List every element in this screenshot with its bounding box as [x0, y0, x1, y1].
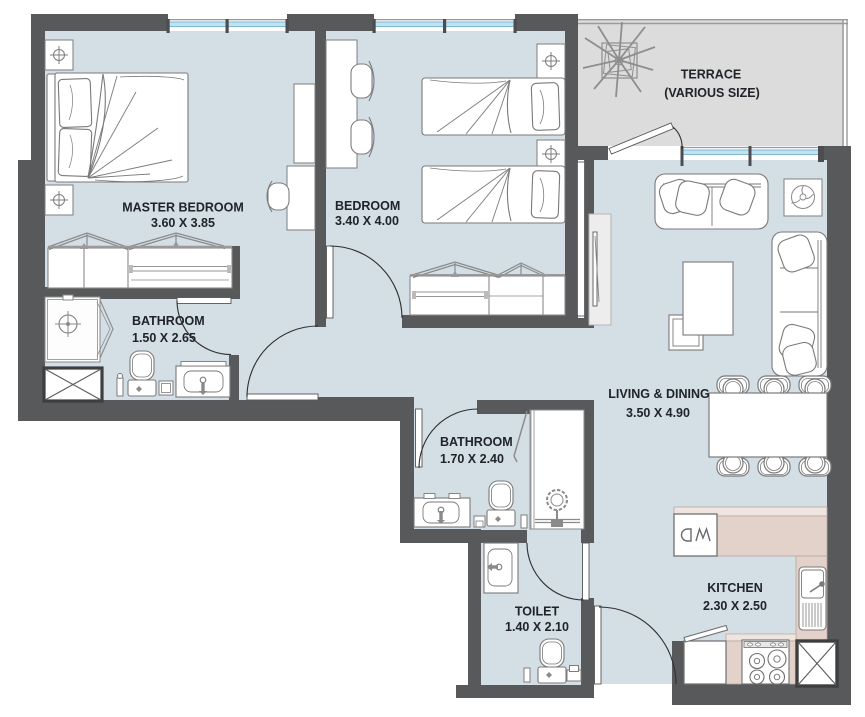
- svg-text:BATHROOM: BATHROOM: [440, 435, 513, 449]
- svg-text:BATHROOM: BATHROOM: [132, 314, 205, 328]
- svg-text:1.70 X 2.40: 1.70 X 2.40: [440, 452, 504, 466]
- svg-text:3.60 X 3.85: 3.60 X 3.85: [151, 216, 215, 230]
- svg-text:BEDROOM: BEDROOM: [335, 199, 400, 213]
- svg-text:2.30 X 2.50: 2.30 X 2.50: [703, 599, 767, 613]
- svg-text:3.50 X 4.90: 3.50 X 4.90: [626, 406, 690, 420]
- svg-text:1.50 X 2.65: 1.50 X 2.65: [132, 331, 196, 345]
- svg-text:(VARIOUS SIZE): (VARIOUS SIZE): [664, 86, 760, 100]
- svg-text:LIVING & DINING: LIVING & DINING: [608, 387, 709, 401]
- svg-text:MASTER BEDROOM: MASTER BEDROOM: [122, 201, 244, 215]
- svg-text:KITCHEN: KITCHEN: [707, 581, 763, 595]
- svg-text:TERRACE: TERRACE: [681, 68, 741, 82]
- svg-text:1.40 X 2.10: 1.40 X 2.10: [505, 620, 569, 634]
- svg-text:TOILET: TOILET: [515, 605, 560, 619]
- svg-text:3.40 X 4.00: 3.40 X 4.00: [335, 214, 399, 228]
